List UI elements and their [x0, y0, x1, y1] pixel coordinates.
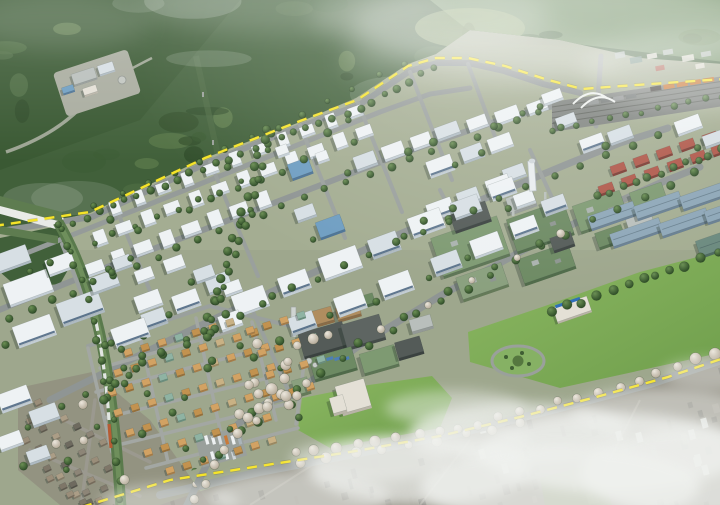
scene-svg: [0, 0, 720, 505]
fog-layer: [0, 0, 720, 505]
aerial-rendering: [0, 0, 720, 505]
